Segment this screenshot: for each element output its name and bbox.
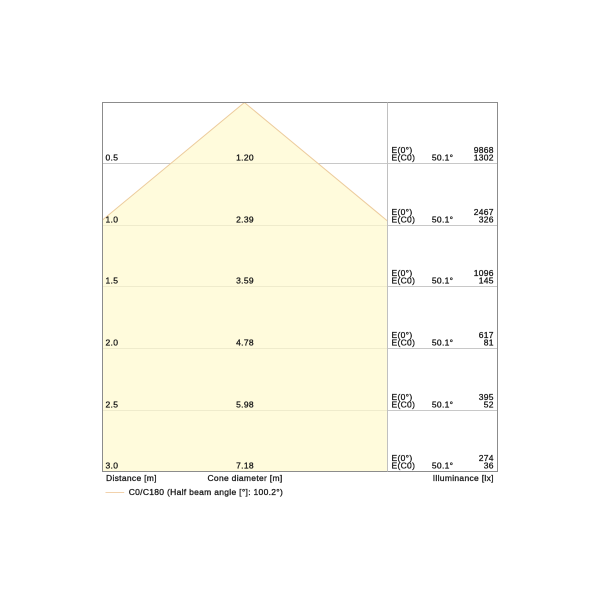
svg-text:326: 326	[479, 215, 494, 225]
svg-text:E(C0): E(C0)	[392, 276, 416, 286]
svg-text:2.39: 2.39	[236, 215, 254, 225]
svg-text:5.98: 5.98	[236, 400, 254, 410]
svg-text:50.1°: 50.1°	[432, 400, 453, 410]
svg-text:E(C0): E(C0)	[392, 400, 416, 410]
svg-text:36: 36	[484, 461, 494, 471]
svg-text:E(C0): E(C0)	[392, 338, 416, 348]
svg-text:1.20: 1.20	[236, 153, 254, 163]
svg-text:50.1°: 50.1°	[432, 153, 453, 163]
svg-text:2.0: 2.0	[106, 338, 119, 348]
svg-text:3.59: 3.59	[236, 276, 254, 286]
svg-text:Distance [m]: Distance [m]	[106, 473, 157, 483]
svg-text:E(C0): E(C0)	[392, 153, 416, 163]
svg-text:50.1°: 50.1°	[432, 215, 453, 225]
svg-text:1.0: 1.0	[106, 215, 119, 225]
svg-text:C0/C180 (Half beam angle [°]:: C0/C180 (Half beam angle [°]: 100.2°)	[129, 487, 283, 497]
svg-text:52: 52	[484, 400, 494, 410]
svg-text:2.5: 2.5	[106, 400, 119, 410]
svg-text:145: 145	[479, 276, 494, 286]
svg-text:Cone diameter [m]: Cone diameter [m]	[207, 473, 282, 483]
svg-text:1302: 1302	[474, 153, 494, 163]
svg-text:3.0: 3.0	[106, 461, 119, 471]
svg-text:50.1°: 50.1°	[432, 461, 453, 471]
svg-text:Illuminance [lx]: Illuminance [lx]	[433, 473, 494, 483]
svg-text:81: 81	[484, 338, 494, 348]
svg-text:0.5: 0.5	[106, 153, 119, 163]
svg-text:E(C0): E(C0)	[392, 461, 416, 471]
svg-text:1.5: 1.5	[106, 276, 119, 286]
svg-text:7.18: 7.18	[236, 461, 254, 471]
svg-text:50.1°: 50.1°	[432, 276, 453, 286]
svg-text:4.78: 4.78	[236, 338, 254, 348]
svg-text:50.1°: 50.1°	[432, 338, 453, 348]
svg-text:E(C0): E(C0)	[392, 215, 416, 225]
